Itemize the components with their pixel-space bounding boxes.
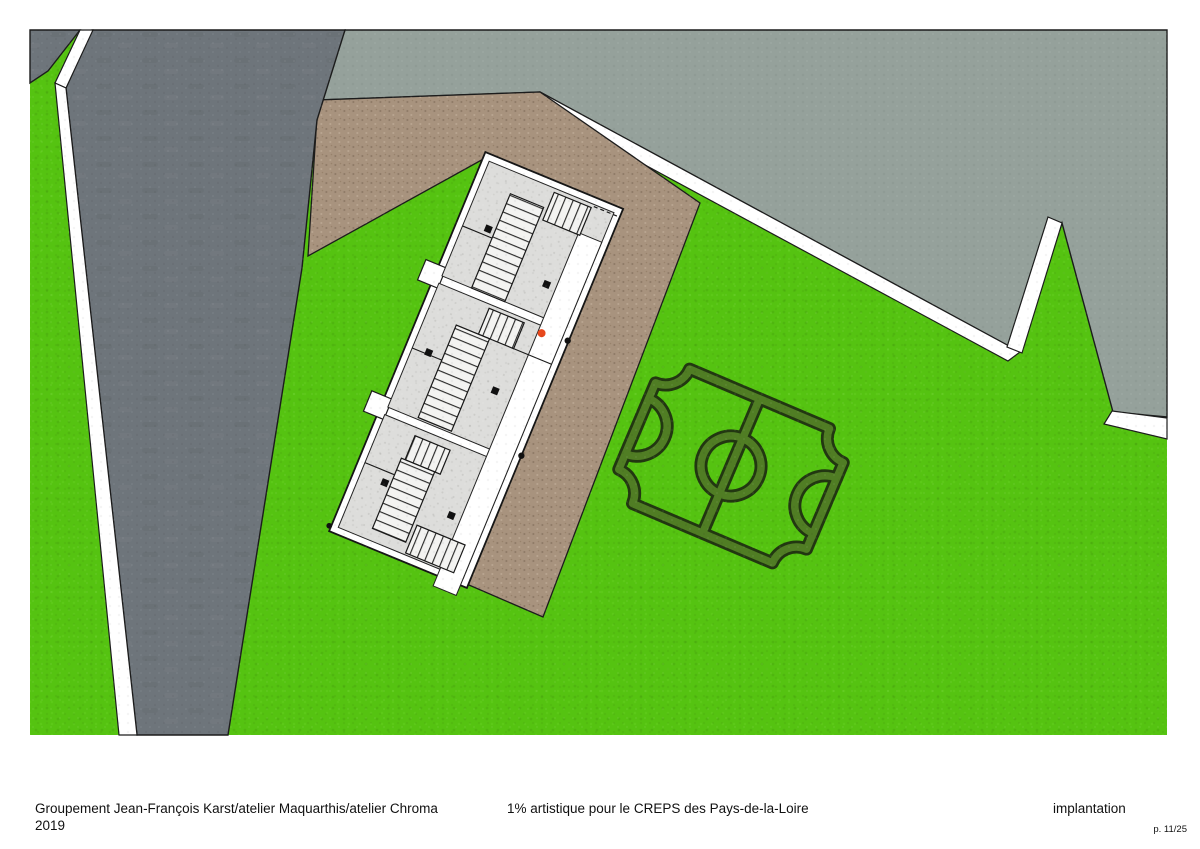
document-page: Groupement Jean-François Karst/atelier M… [0, 0, 1200, 849]
footer-credits-line1: Groupement Jean-François Karst/atelier M… [35, 801, 505, 818]
footer-drawing-title: implantation [1053, 801, 1183, 818]
site-plan-drawing [0, 0, 1200, 849]
footer-project-title: 1% artistique pour le CREPS des Pays-de-… [507, 801, 927, 818]
page-number: p. 11/25 [1153, 824, 1187, 835]
texture-overlay [30, 30, 1167, 735]
footer-credits: Groupement Jean-François Karst/atelier M… [35, 801, 505, 834]
footer-credits-line2: 2019 [35, 818, 505, 835]
site-plan-svg [0, 0, 1200, 849]
